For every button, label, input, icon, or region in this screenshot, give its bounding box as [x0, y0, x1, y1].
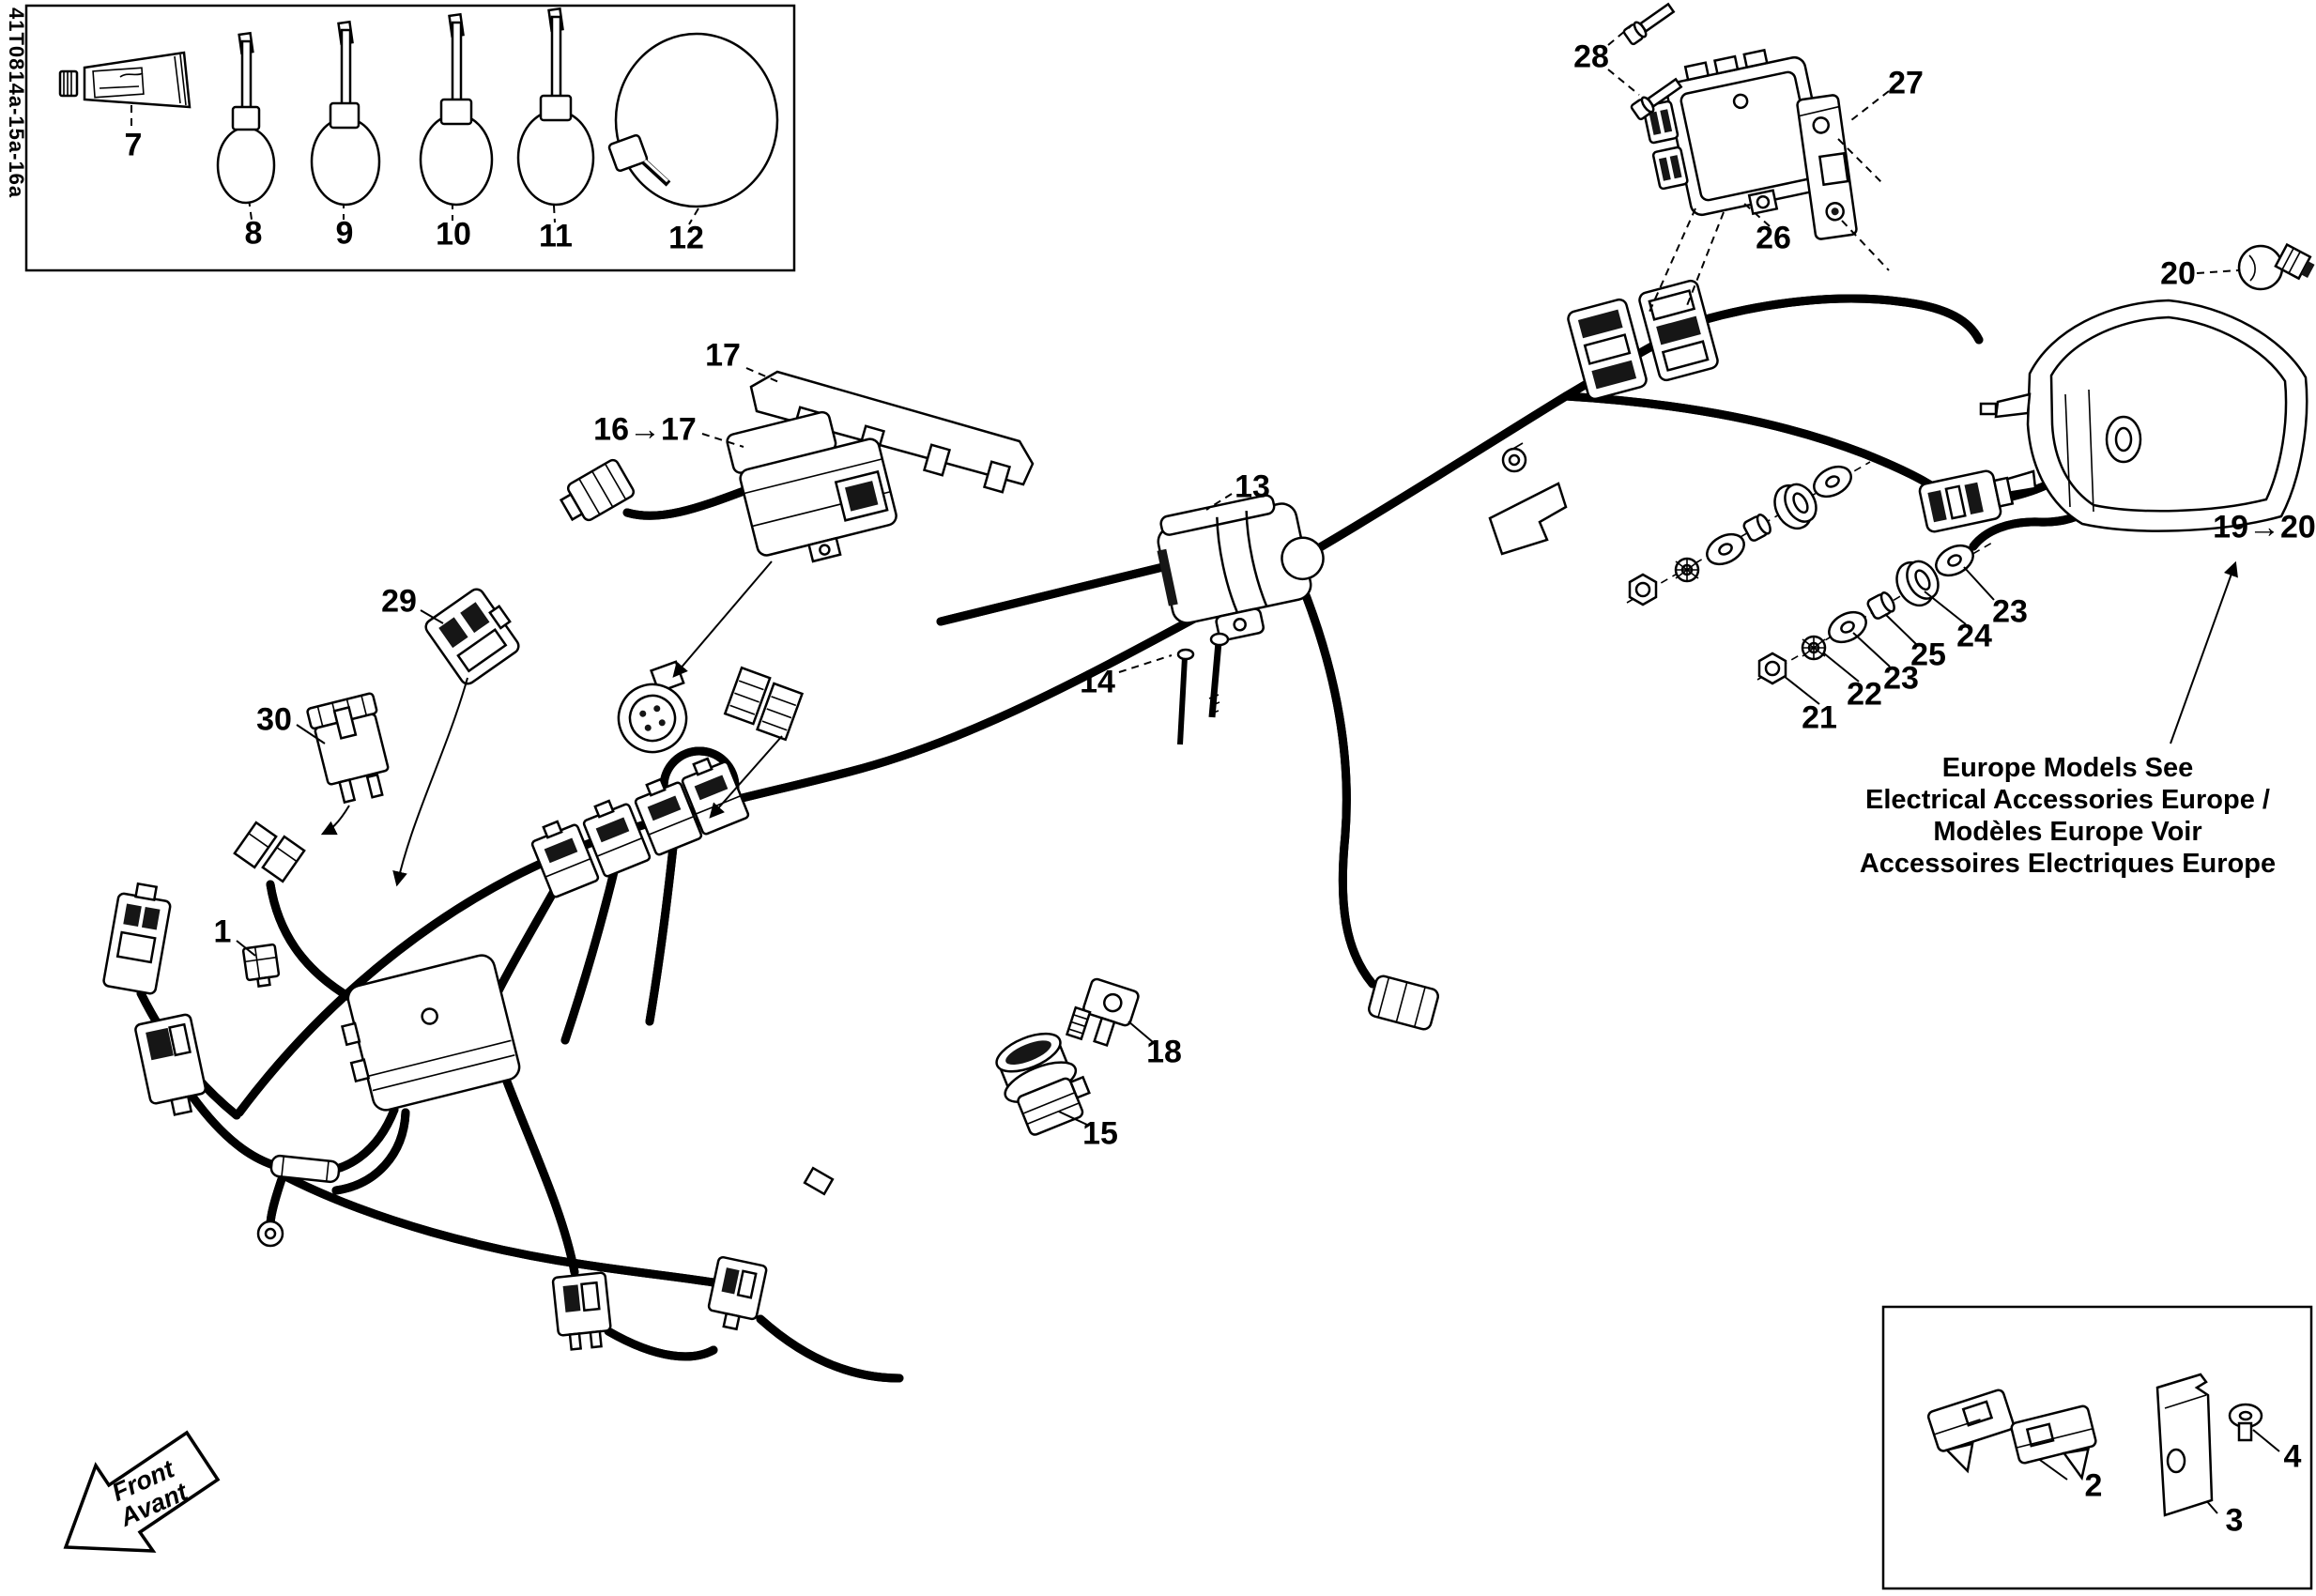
loop-tie-12	[608, 34, 777, 207]
module-16-17	[726, 401, 902, 575]
cable-tie-11	[518, 8, 593, 205]
europe-note-line-4: Accessoires Electriques Europe	[1817, 848, 2316, 880]
callout-19-20: 19→20	[2213, 510, 2316, 546]
mounting-bracket-27	[1797, 95, 1857, 240]
cable-tie-8	[218, 33, 274, 203]
bracket-3	[2157, 1374, 2212, 1515]
bottom-connector-a	[553, 1272, 613, 1350]
callout-25: 25	[1910, 637, 1946, 674]
callout-13: 13	[1235, 469, 1270, 506]
cable-tie-10	[421, 14, 492, 205]
document-code: 41T0814a-15a-16a	[4, 8, 28, 198]
sealant-tube-7	[60, 53, 190, 107]
round-connector	[606, 662, 703, 761]
callout-14: 14	[1080, 665, 1115, 701]
europe-note-line-2: Electrical Accessories Europe /	[1817, 784, 2316, 816]
callout-3: 3	[2226, 1503, 2244, 1540]
rivet-4	[2230, 1404, 2262, 1440]
europe-note-line-1: Europe Models See	[1817, 752, 2316, 784]
cable-tie-9	[312, 22, 379, 205]
connector-29	[423, 583, 527, 686]
sensor-18	[1067, 975, 1140, 1051]
callout-16-17: 16→17	[593, 412, 697, 449]
callout-9: 9	[336, 216, 354, 253]
callout-10: 10	[436, 217, 471, 253]
relay-30	[307, 693, 397, 807]
callout-7: 7	[125, 128, 143, 164]
inset-box-clips	[1883, 1307, 2311, 1588]
flag-connectors	[235, 822, 304, 882]
callout-20: 20	[2160, 256, 2196, 293]
callout-2: 2	[2085, 1468, 2103, 1505]
callout-30: 30	[256, 702, 292, 739]
callout-11: 11	[539, 219, 573, 255]
screws-14	[1178, 634, 1228, 744]
exploded-parts-diagram: 41T0814a-15a-16a 7 8 9 10 11 12 17 16→17…	[0, 0, 2316, 1596]
callout-24: 24	[1956, 619, 1992, 655]
clips-2	[1927, 1389, 2104, 1491]
callout-17: 17	[705, 338, 741, 375]
callout-29: 29	[381, 584, 417, 621]
callout-8: 8	[245, 216, 263, 253]
callout-1: 1	[214, 914, 232, 951]
module-pigtail-connector	[557, 458, 636, 528]
left-connector-a	[103, 881, 174, 994]
hardware-stack-upper	[1627, 461, 1870, 605]
callout-22: 22	[1847, 677, 1882, 714]
callout-27: 27	[1888, 66, 1924, 102]
bottom-connector-c	[805, 1168, 833, 1194]
hardware-stack-lower	[1757, 540, 1992, 683]
harness-main-connectors	[1490, 279, 1719, 554]
lone-connector	[1367, 974, 1439, 1031]
europe-models-note: Europe Models See Electrical Accessories…	[1817, 752, 2316, 880]
callout-21: 21	[1802, 700, 1837, 737]
callout-18: 18	[1146, 1035, 1182, 1071]
callout-12: 12	[668, 221, 704, 257]
callout-26: 26	[1756, 221, 1791, 257]
callout-28: 28	[1573, 39, 1609, 76]
twin-connector	[724, 668, 804, 740]
callout-4: 4	[2284, 1439, 2302, 1476]
callout-23b: 23	[1992, 594, 2028, 631]
callout-15: 15	[1082, 1116, 1118, 1153]
europe-note-line-3: Modèles Europe Voir	[1817, 816, 2316, 848]
bulb-20	[2239, 245, 2316, 289]
